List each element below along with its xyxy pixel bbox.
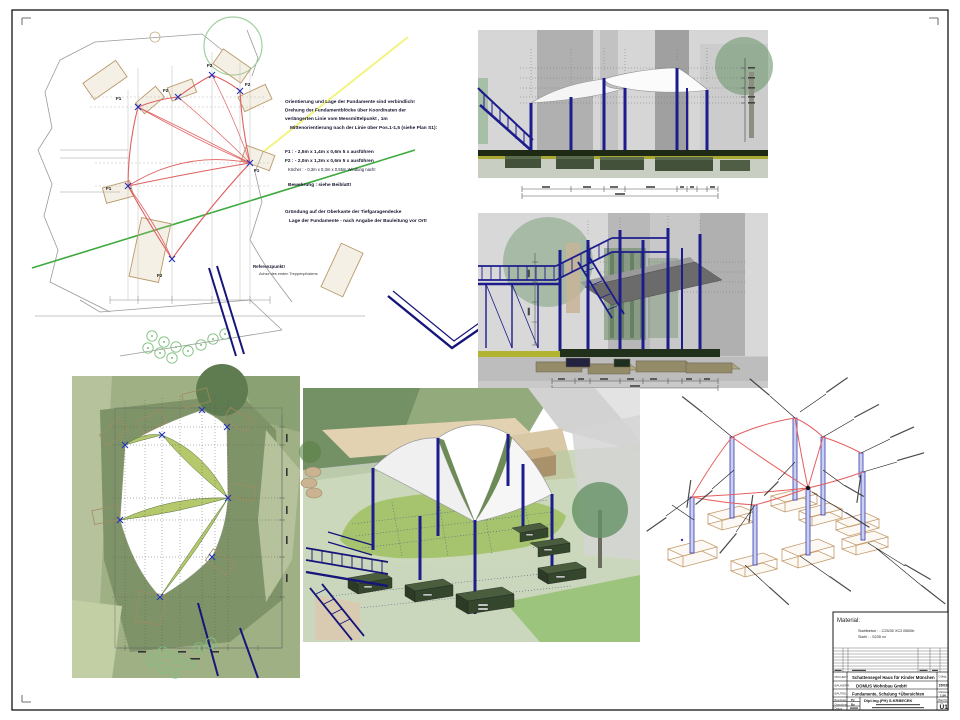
note-orientation-line1: Orientierung und Lage der Fundamente sin… xyxy=(285,99,415,105)
spec-bewehrung: Bewehrung : siehe Beiblatt! xyxy=(288,182,352,188)
drawn-label: Bearbeitet xyxy=(835,698,847,702)
elevation-view-1 xyxy=(478,30,773,199)
spec-koecher: Köcher : - 0,3m x 0,3m x 0,55m Windung n… xyxy=(288,167,376,172)
technical-drawing-canvas: F1 F2 F2 F2 F1 F1 F2 Orientierung und La… xyxy=(0,0,960,720)
tree xyxy=(715,37,773,95)
project-number: 15/038 xyxy=(939,684,949,688)
date-value-illegible xyxy=(850,708,858,709)
foundation-label: F1 xyxy=(116,96,122,101)
spec-f2: F2 : - 2,0m x 1,3m x 0,6m 5 x ausführen xyxy=(285,158,374,164)
foundation-label: F1 xyxy=(254,168,260,173)
scale-value: 1:50 xyxy=(940,694,946,698)
client-name: DOMUS Wohnbau GmbH xyxy=(856,684,907,689)
date-label: Datum xyxy=(835,707,843,711)
part-label: BAUTEIL xyxy=(835,692,848,696)
material-line1: Stahlbeton : - C25/30 XC2 B500b xyxy=(858,629,914,633)
note-orientation-line3: verlängerten Linie vom Messmittelpunkt ,… xyxy=(285,116,388,122)
project-label: PROJEKT xyxy=(835,675,849,679)
client-label: BAUHERR xyxy=(835,684,851,688)
part-name: Fundamente, Schalung +Übersichten xyxy=(852,692,925,697)
spec-f1: F1 : - 2,5m x 1,4m x 0,6m 5 x ausführen xyxy=(285,149,374,155)
note-gruendung-line1: Gründung auf der Oberkante der Tiefgarag… xyxy=(285,209,402,215)
note-orientation-line4: Mittenorientierung nach der Linie über P… xyxy=(290,125,438,131)
foundation-label: F2 xyxy=(245,82,251,87)
foundation-label: F1 xyxy=(106,186,112,191)
material-title: Material: xyxy=(837,618,860,624)
drawing-sheet: F1 F2 F2 F2 F1 F1 F2 Orientierung und La… xyxy=(0,0,960,720)
drawn-by: Py xyxy=(851,698,855,702)
traced-by: By xyxy=(851,703,855,707)
note-orientation-line2: Drehung der Fundamentblöcke über Koordin… xyxy=(285,108,406,114)
traced-label: Gezeichnet xyxy=(835,702,848,706)
sheet-number: Ü1 xyxy=(940,702,949,711)
perspective-3d-view xyxy=(299,388,640,642)
site-plan-rendered-view xyxy=(72,364,300,678)
foundation-label: F2 xyxy=(163,88,169,93)
sheet-number-label: Blatt Nr xyxy=(939,698,948,702)
note-gruendung-line2: Lage der Fundamente - nach Angabe der Ba… xyxy=(289,218,427,224)
valid-label: Gültig xyxy=(939,675,947,679)
material-line2: Stahl : - S235 xx xyxy=(858,635,886,639)
reference-point-title: Referenzpunkt! xyxy=(253,264,285,269)
foundation-label: F2 xyxy=(207,63,213,68)
reference-point-subtitle: Achse des ersten Treppenpfostens xyxy=(259,272,318,276)
project-name: Schattensegel Haus für Kinder München xyxy=(852,675,935,680)
engineer-name: Dipl.Ing.(FH) S.KRBECEK xyxy=(864,698,913,703)
title-block: Material: Stahlbeton : - C25/30 XC2 B500… xyxy=(833,612,949,711)
node-point xyxy=(806,486,810,490)
foundation-label: F2 xyxy=(157,273,163,278)
elevation-view-2 xyxy=(478,213,768,391)
